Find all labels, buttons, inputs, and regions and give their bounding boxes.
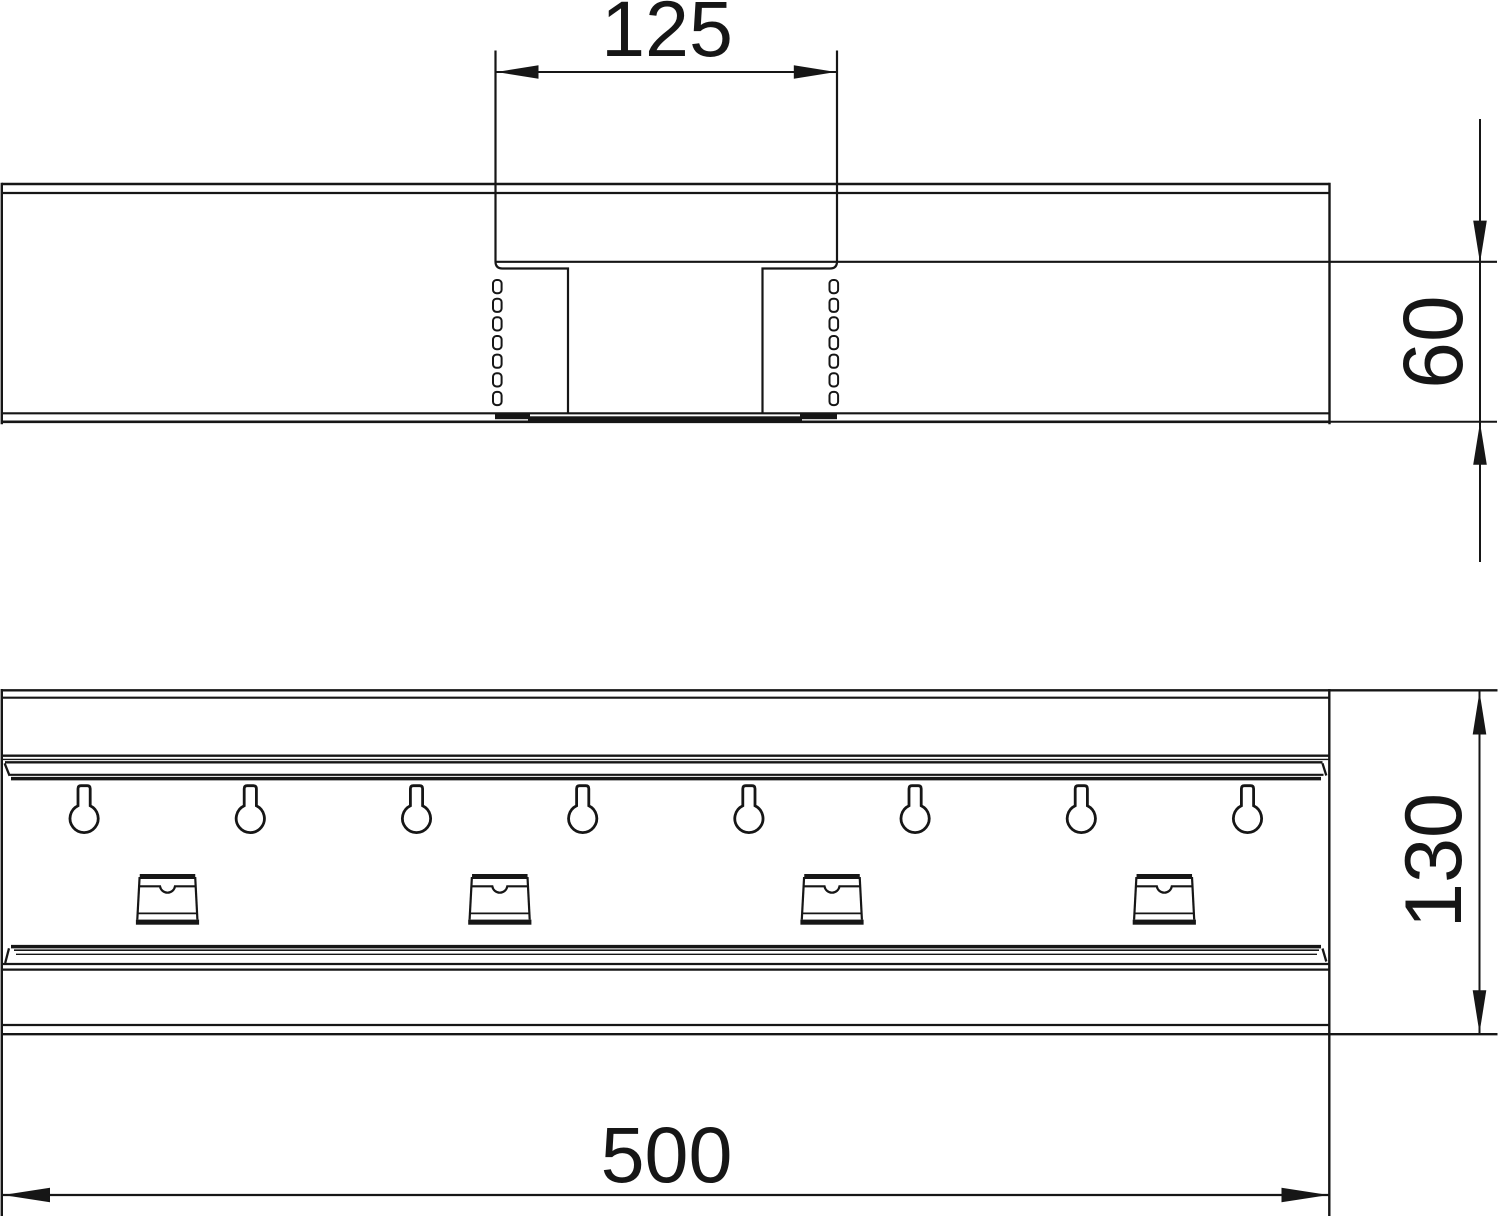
svg-text:125: 125 bbox=[601, 0, 733, 73]
svg-text:130: 130 bbox=[1389, 793, 1479, 928]
svg-text:500: 500 bbox=[601, 1110, 733, 1199]
svg-text:60: 60 bbox=[1386, 295, 1480, 388]
